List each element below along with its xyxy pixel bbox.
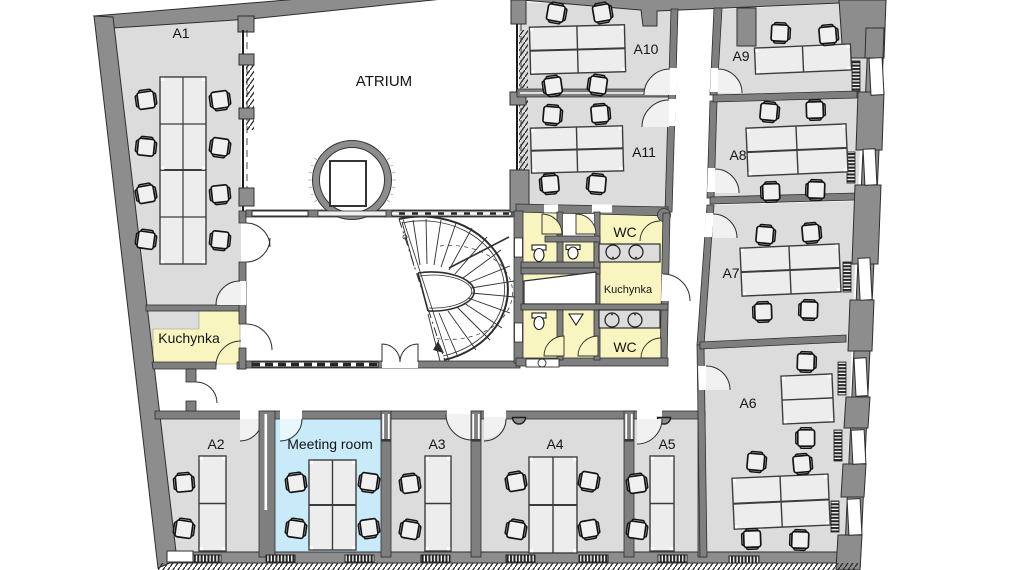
svg-text:A2: A2 bbox=[207, 436, 224, 452]
svg-text:A9: A9 bbox=[732, 48, 749, 64]
svg-text:WC: WC bbox=[613, 224, 636, 240]
svg-text:WC: WC bbox=[613, 339, 636, 355]
svg-text:Kuchynka: Kuchynka bbox=[158, 330, 220, 346]
svg-text:A11: A11 bbox=[632, 144, 656, 160]
svg-text:Meeting room: Meeting room bbox=[287, 436, 373, 452]
svg-text:ATRIUM: ATRIUM bbox=[356, 73, 412, 90]
svg-text:A4: A4 bbox=[546, 436, 563, 452]
svg-text:A7: A7 bbox=[722, 265, 739, 281]
svg-text:A1: A1 bbox=[172, 25, 189, 41]
svg-text:A10: A10 bbox=[634, 41, 659, 57]
svg-text:A3: A3 bbox=[428, 436, 445, 452]
svg-text:A6: A6 bbox=[739, 395, 756, 411]
svg-text:A5: A5 bbox=[658, 436, 675, 452]
svg-text:A8: A8 bbox=[729, 147, 746, 163]
svg-text:Kuchynka: Kuchynka bbox=[604, 284, 653, 296]
